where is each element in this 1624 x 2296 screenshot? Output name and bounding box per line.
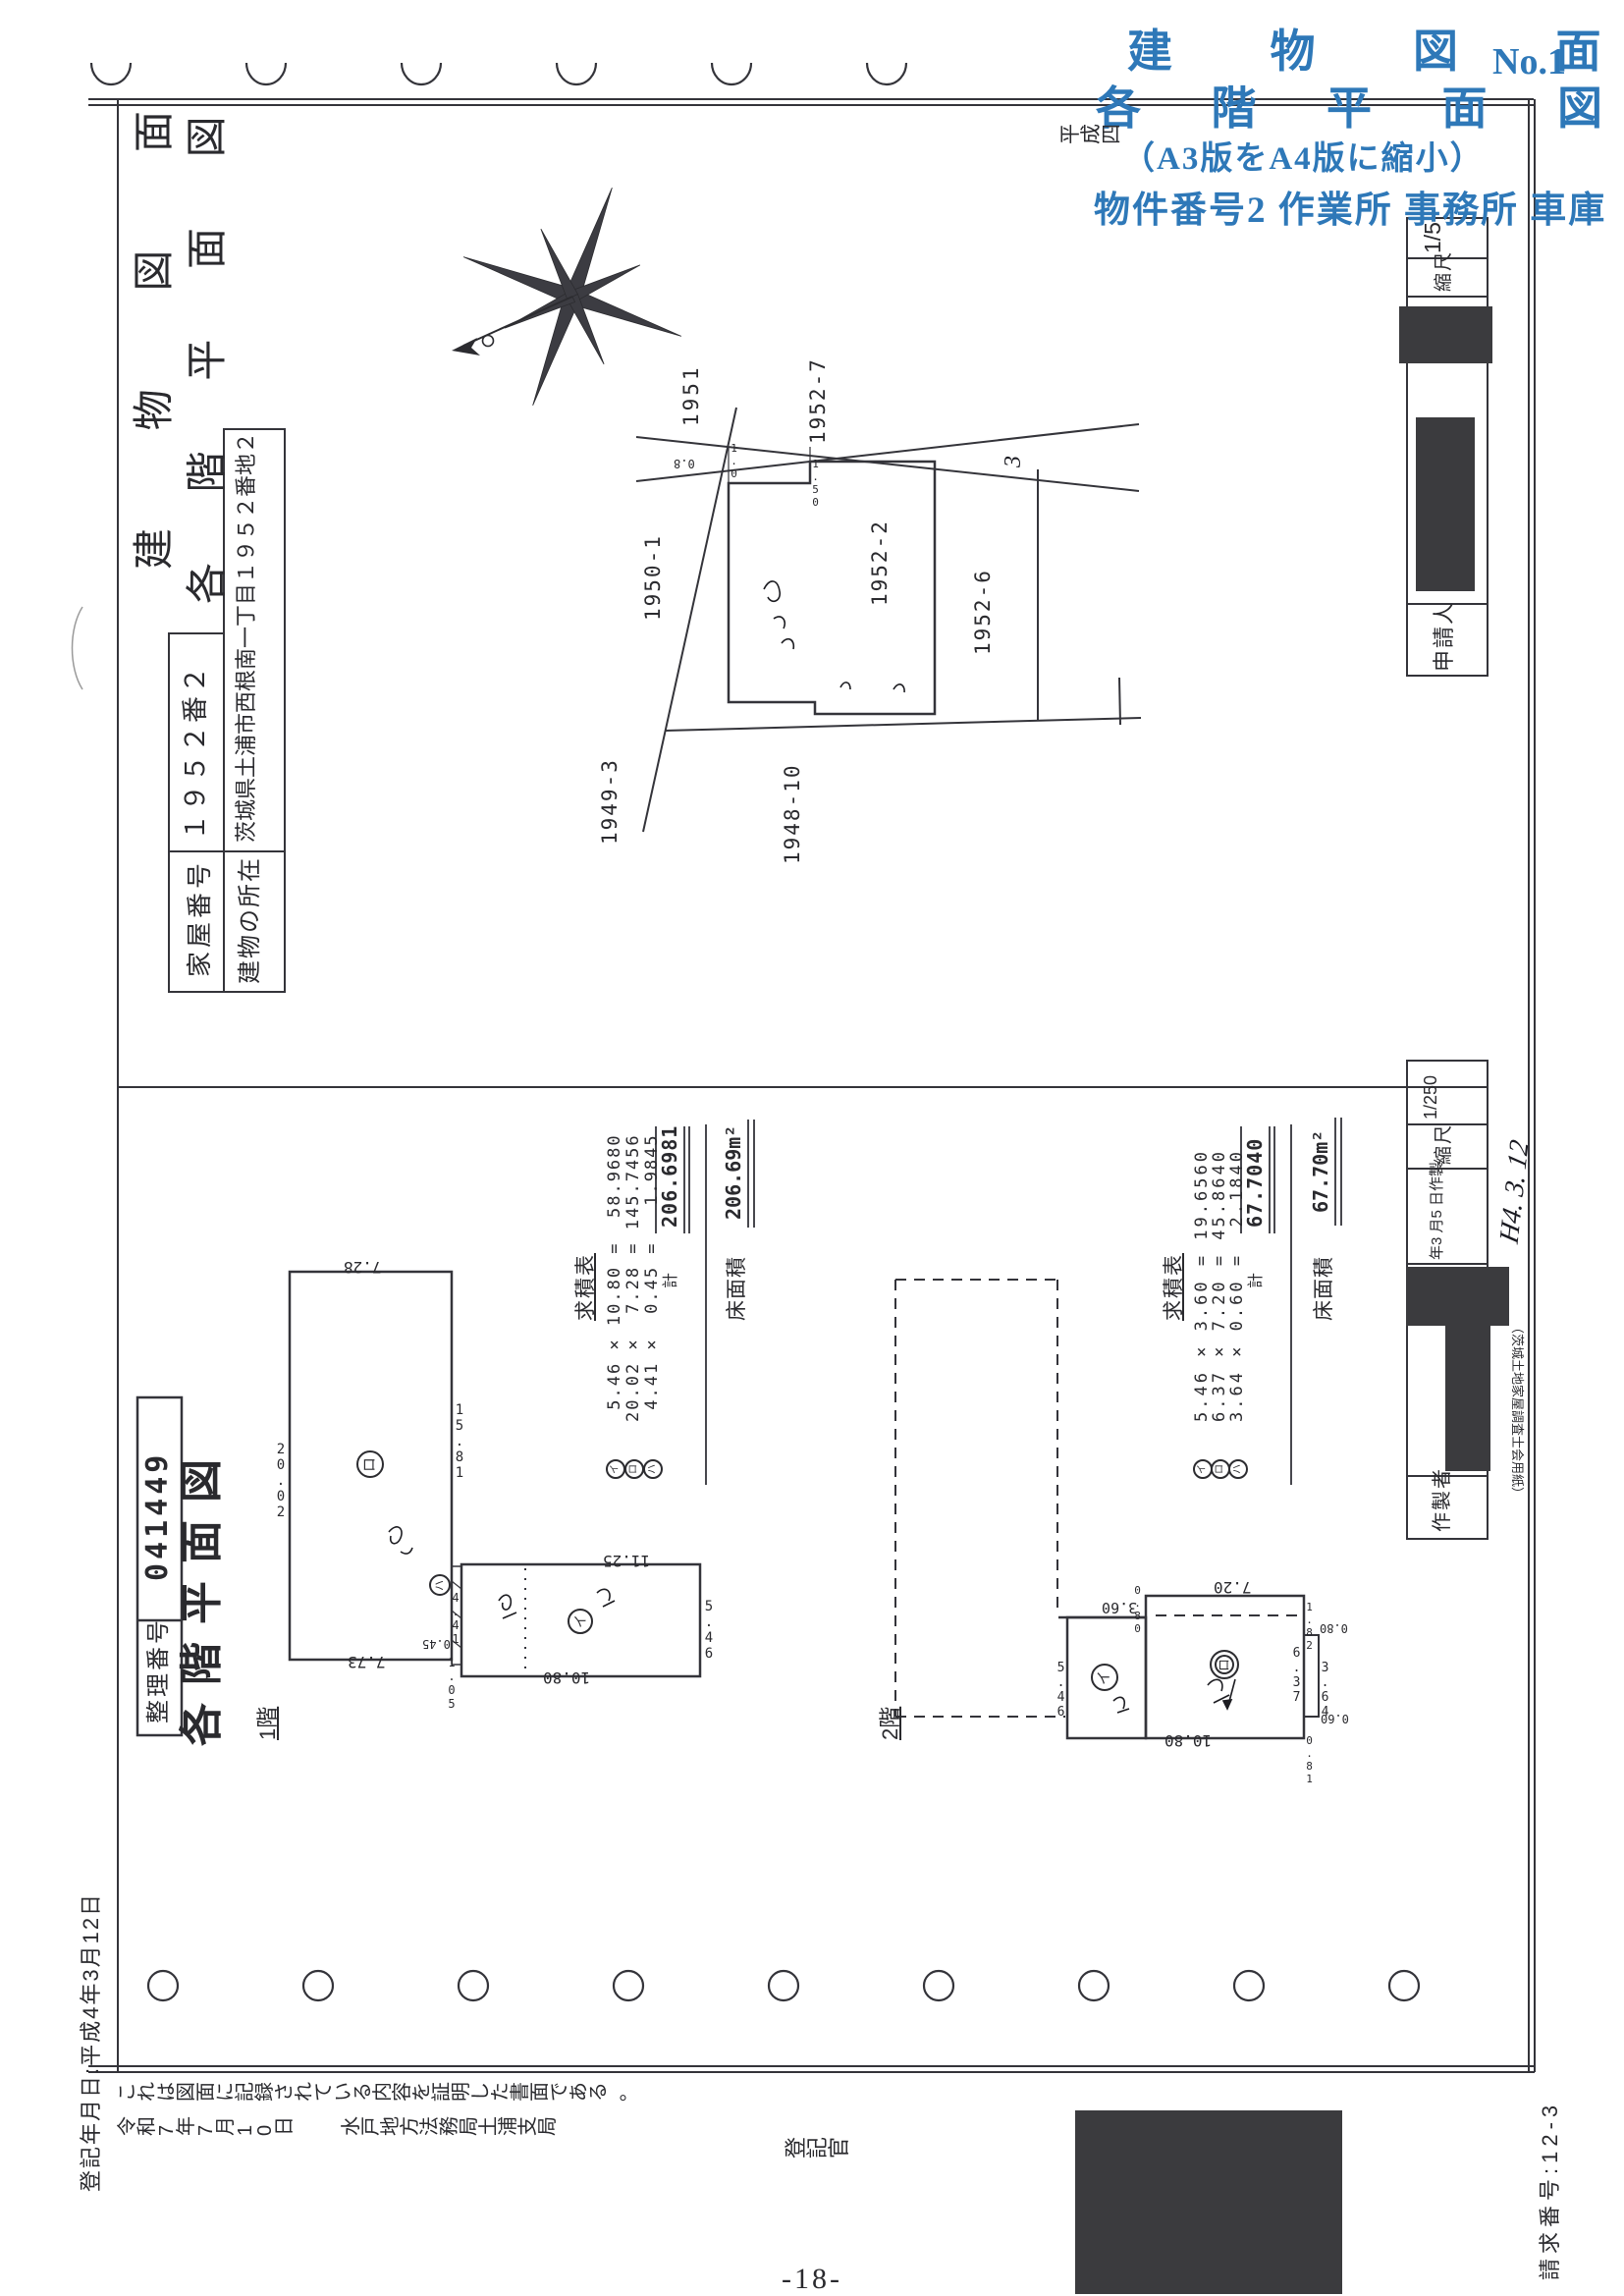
handwritten-3: 3: [1001, 456, 1025, 467]
redaction-maker-b: [1445, 1267, 1490, 1471]
dim-1.50-site: 1.50: [810, 458, 821, 509]
scale1-label: 縮尺: [1435, 250, 1453, 292]
reference-number-value: 041449: [143, 1451, 173, 1581]
floor1-label: 1階: [257, 1707, 279, 1740]
site-plan: [636, 408, 1141, 832]
marker-ro-t1: ロ: [624, 1459, 644, 1479]
dim-0.80-b: 0.80: [1320, 1622, 1348, 1634]
house-number-label: 家屋番号: [187, 859, 212, 977]
dim-15.81: 15.81: [453, 1402, 466, 1481]
dim-7.28: 7.28: [344, 1259, 382, 1275]
drawing-linework: [0, 0, 1624, 2296]
dim-10.80-f2: 10.80: [1164, 1732, 1212, 1748]
calc2-floorarea-value: 67.70m²: [1311, 1130, 1330, 1213]
scale1-value: 1/5: [1422, 222, 1444, 253]
dim-6.37: 6.37: [1290, 1646, 1303, 1705]
calc-table2-title: 求積表: [1164, 1253, 1184, 1321]
calc1-sum-label: 計: [664, 1273, 679, 1288]
cert-office: 水戸地方法務局土浦支局: [342, 2116, 558, 2136]
calc2-sum-value: 67.7040: [1245, 1138, 1265, 1228]
request-number: 請求番号:12-3: [1540, 2101, 1561, 2280]
lot-1952-2: 1952-2: [870, 519, 891, 606]
overlay-reduction-note: （A3版をA4版に縮小）: [1122, 143, 1485, 176]
floor-plan-section-title: 各階平面図: [181, 1442, 224, 1746]
calc1-sum-value: 206.6981: [660, 1125, 679, 1228]
marker-i-t1: イ: [606, 1459, 625, 1479]
lot-1952-6: 1952-6: [973, 569, 994, 655]
scale2-label: 縮尺: [1435, 1123, 1453, 1165]
cert-text: これは図面に記録されている内容を証明した書面である。: [118, 2082, 628, 2102]
dim-7.20: 7.20: [1214, 1579, 1252, 1595]
marker-ro-t2: ロ: [1211, 1459, 1230, 1479]
stamp-heisei: 平成四: [1060, 124, 1122, 144]
maker-label: 作製者: [1433, 1467, 1452, 1532]
dim-0.45: 0.45: [422, 1638, 451, 1650]
dim-1.82: 1.82: [1304, 1601, 1315, 1652]
house-number-value: １９５２番２: [183, 664, 209, 841]
dim-0.80-a: 0.80: [1132, 1584, 1143, 1635]
marker-ro-f2: ロ: [1210, 1650, 1239, 1679]
marker-ha-t2: ハ: [1228, 1459, 1248, 1479]
dim-5.46-f1: 5.46: [702, 1599, 716, 1662]
dim-0.81: 0.81: [1304, 1734, 1315, 1785]
floor2-label: 2階: [880, 1707, 901, 1740]
dim-10.80-f1: 10.80: [543, 1669, 590, 1685]
calc2-sum-label: 計: [1249, 1273, 1265, 1288]
registration-date: 登記年月日:平成4年3月12日: [81, 1892, 102, 2192]
dim-11.25: 11.25: [603, 1553, 650, 1568]
dim-4.41: 4.41: [450, 1591, 461, 1646]
calc2-row2: 6.37 × 7.20 = 45.8640: [1212, 1149, 1228, 1422]
calc-table1-title: 求積表: [575, 1253, 596, 1321]
dim-3.64: 3.64: [1319, 1661, 1331, 1720]
marker-ha-t1: ハ: [643, 1459, 663, 1479]
page-number: -18-: [782, 2265, 842, 2294]
paper-credit: （茨城土地家屋調査士会用紙）: [1511, 1321, 1524, 1500]
calc2-row1: 5.46 × 3.60 = 19.6560: [1194, 1149, 1211, 1422]
redaction-applicant: [1416, 417, 1475, 591]
handwritten-scribbles: [389, 581, 1235, 1713]
scale2-value: 1/250: [1422, 1075, 1439, 1120]
lot-1950-1: 1950-1: [643, 534, 664, 621]
applicant-label: 申請人: [1434, 601, 1455, 672]
dim-7.73: 7.73: [348, 1654, 386, 1669]
calc1-floorarea-label: 床面積: [727, 1256, 747, 1321]
reference-number-label: 整理番号: [147, 1617, 171, 1723]
doc-title-floors: 各 階 平 面 図: [187, 86, 228, 604]
lot-1951: 1951: [681, 364, 702, 426]
calc2-floorarea-label: 床面積: [1314, 1256, 1334, 1321]
building-footprint: [729, 462, 935, 714]
dim-5.46-f2: 5.46: [1055, 1661, 1067, 1720]
overlay-sheet-no: No.1: [1492, 43, 1566, 81]
marker-i-f2: イ: [1091, 1664, 1118, 1691]
made-date: 年3 月5 日作製: [1430, 1162, 1444, 1260]
marker-ro-f1: ロ: [356, 1450, 384, 1478]
lot-1952-7: 1952-7: [808, 357, 829, 444]
redaction-scale-area: [1399, 306, 1492, 363]
overlay-property-note: 物件番号2 作業所 事務所 車庫: [1094, 192, 1606, 229]
location-value: 茨城県土浦市西根南一丁目１９５２番地２: [236, 432, 257, 843]
marker-i-f1: イ: [568, 1609, 593, 1634]
calc1-row2: 20.02 × 7.28 = 145.7456: [625, 1133, 642, 1422]
lot-1949-3: 1949-3: [600, 758, 621, 845]
lot-1948-10: 1948-10: [783, 763, 803, 864]
marker-ha-f1: ハ: [429, 1574, 451, 1596]
marker-i-t2: イ: [1193, 1459, 1213, 1479]
location-label: 建物の所在: [239, 856, 262, 984]
overlay-title-line2: 各 階 平 面 図: [1096, 86, 1624, 132]
dim-1.0-site: 1.0: [729, 442, 739, 480]
cert-registrar: 登記官: [785, 2137, 850, 2159]
calc1-row1: 5.46 × 10.80 = 58.9680: [607, 1133, 623, 1422]
redaction-registrar-seal: [1075, 2110, 1342, 2294]
scanned-document-page: 建 物 図 面No.1各 階 平 面 図（A3版をA4版に縮小）物件番号2 作業…: [0, 0, 1624, 2296]
dim-0.8-site: 0.8: [674, 458, 695, 469]
dim-20.02: 20.02: [274, 1442, 288, 1520]
dim-1.05: 1.05: [446, 1656, 458, 1711]
north-arrow-icon: [452, 185, 684, 408]
calc1-floorarea-value: 206.69m²: [724, 1125, 743, 1220]
doc-title-building: 建 物 図 面: [134, 68, 175, 570]
cert-date: 令和7年7月10日: [118, 2116, 295, 2136]
